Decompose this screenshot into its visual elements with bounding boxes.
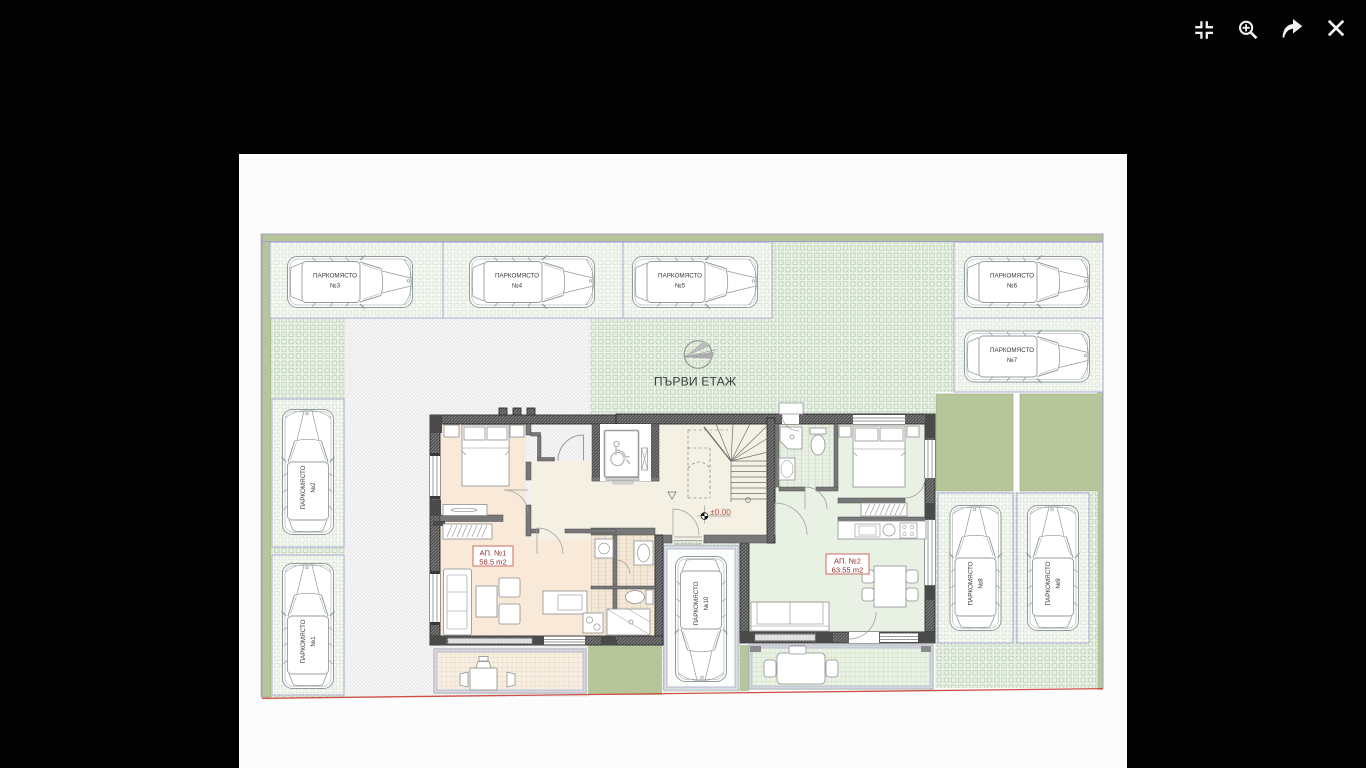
svg-text:ПАРКОМЯСТО: ПАРКОМЯСТО bbox=[300, 465, 307, 509]
svg-text:ПАРКОМЯСТО: ПАРКОМЯСТО bbox=[990, 347, 1034, 354]
svg-text:№8: №8 bbox=[978, 578, 985, 589]
svg-text:АП. №1: АП. №1 bbox=[479, 549, 506, 558]
svg-text:№3: №3 bbox=[330, 283, 341, 290]
svg-text:ПАРКОМЯСТО: ПАРКОМЯСТО bbox=[693, 581, 700, 625]
svg-text:ПАРКОМЯСТО: ПАРКОМЯСТО bbox=[495, 273, 539, 280]
svg-text:ПАРКОМЯСТО: ПАРКОМЯСТО bbox=[300, 619, 307, 663]
svg-text:ПАРКОМЯСТО: ПАРКОМЯСТО bbox=[990, 273, 1034, 280]
svg-text:№7: №7 bbox=[1007, 357, 1018, 364]
svg-text:№4: №4 bbox=[512, 283, 523, 290]
svg-text:№5: №5 bbox=[675, 283, 686, 290]
svg-text:АП. №2: АП. №2 bbox=[834, 557, 861, 566]
svg-text:№9: №9 bbox=[1055, 578, 1062, 589]
svg-text:№10: №10 bbox=[703, 596, 710, 610]
svg-text:№2: №2 bbox=[310, 482, 317, 493]
svg-text:ПЪРВИ ЕТАЖ: ПЪРВИ ЕТАЖ bbox=[654, 375, 737, 389]
svg-text:ПАРКОМЯСТО: ПАРКОМЯСТО bbox=[1045, 561, 1052, 605]
svg-text:ПАРКОМЯСТО: ПАРКОМЯСТО bbox=[968, 561, 975, 605]
svg-text:ПАРКОМЯСТО: ПАРКОМЯСТО bbox=[313, 273, 357, 280]
svg-text:№6: №6 bbox=[1007, 283, 1018, 290]
svg-text:63.55 m2: 63.55 m2 bbox=[832, 566, 864, 575]
svg-text:ПАРКОМЯСТО: ПАРКОМЯСТО bbox=[658, 273, 702, 280]
svg-text:№1: №1 bbox=[310, 636, 317, 647]
svg-text:58.5 m2: 58.5 m2 bbox=[479, 558, 506, 567]
